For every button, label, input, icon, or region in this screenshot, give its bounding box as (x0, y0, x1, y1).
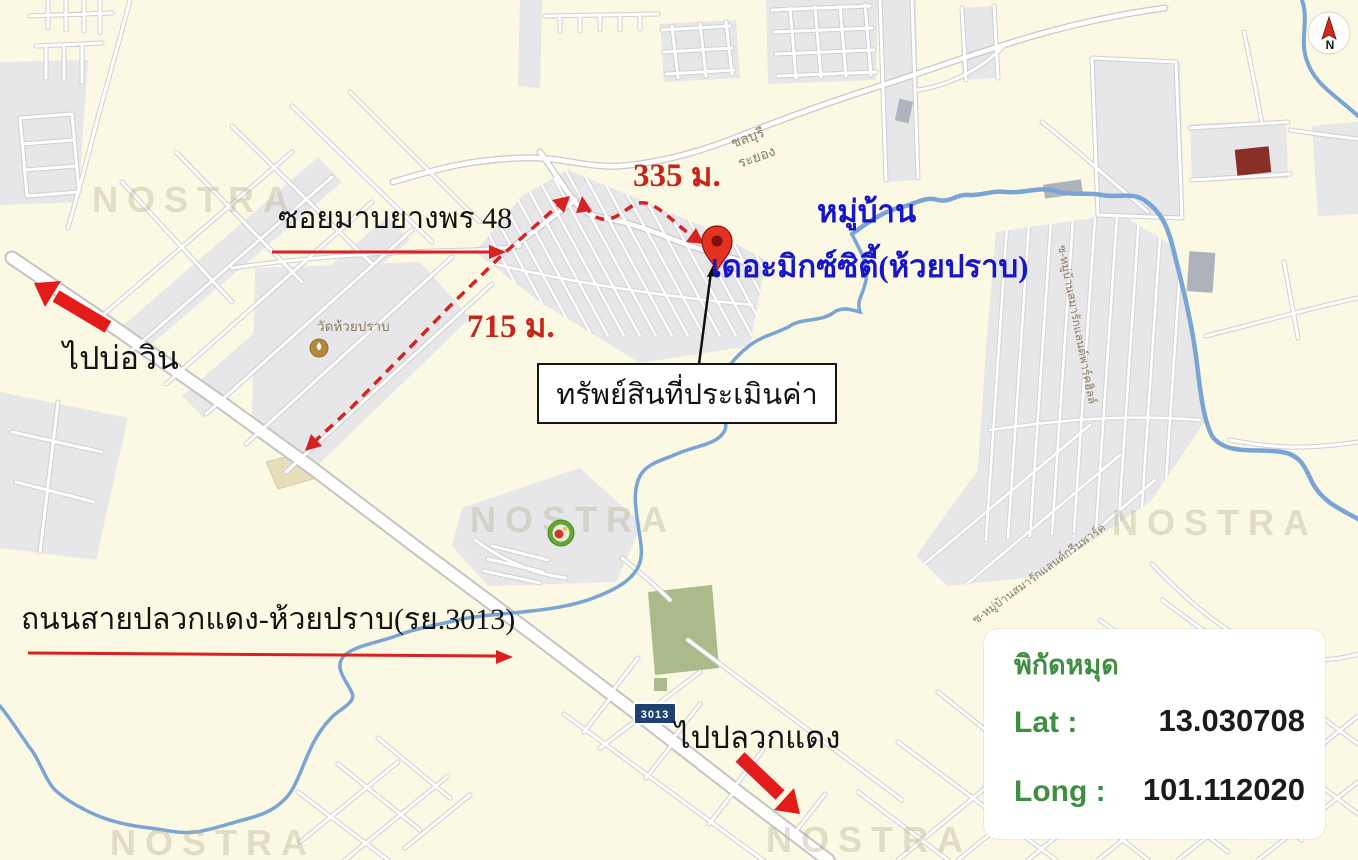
road-shield-text: 3013 (641, 709, 669, 721)
village-name-line2: เดอะมิกซ์ซิตี้(ห้วยปราบ) (711, 251, 1028, 284)
main-road-arrow (28, 650, 513, 664)
temple-icon (310, 339, 328, 357)
compass-label: N (1326, 38, 1335, 52)
distance-label-715: 715 ม. (467, 310, 555, 345)
direction-arrow-bowin (34, 281, 108, 327)
village-name-line1: หมู่บ้าน (817, 196, 916, 229)
compass-icon: N (1308, 12, 1350, 54)
long-label: Long : (1014, 775, 1106, 809)
direction-label-pluakdaeng: ไปปลวกแดง (675, 722, 840, 755)
appraisal-map-image: NOSTRA NOSTRA NOSTRA NOSTRA NOSTRA ชลบุร… (0, 0, 1358, 860)
coordinates-panel: พิกัดหมุด Lat : 13.030708 Long : 101.112… (984, 629, 1325, 839)
green-areas (648, 585, 719, 691)
coordinates-title: พิกัดหมุด (1014, 643, 1119, 686)
nostra-watermark: NOSTRA (92, 179, 298, 220)
nostra-watermark: NOSTRA (766, 819, 972, 860)
distance-label-335: 335 ม. (633, 159, 721, 194)
lat-value: 13.030708 (1158, 703, 1305, 739)
direction-label-bowin: ไปบ่อวิน (63, 342, 179, 376)
lat-label: Lat : (1014, 706, 1077, 740)
temple-label: วัดห้วยปราบ (317, 319, 390, 334)
long-value: 101.112020 (1143, 772, 1305, 808)
gas-station-icon (548, 520, 574, 546)
nostra-watermark: NOSTRA (1112, 502, 1318, 543)
property-label-text: ทรัพย์สินที่ประเมินค่า (556, 371, 818, 417)
road-shield-3013: 3013 (634, 703, 676, 724)
main-road-name-label: ถนนสายปลวกแดง-ห้วยปราบ(รย.3013) (21, 604, 515, 636)
property-label-box: ทรัพย์สินที่ประเมินค่า (537, 363, 837, 424)
nostra-watermark: NOSTRA (110, 822, 316, 860)
soi-name-label: ซอยมาบยางพร 48 (278, 203, 512, 235)
